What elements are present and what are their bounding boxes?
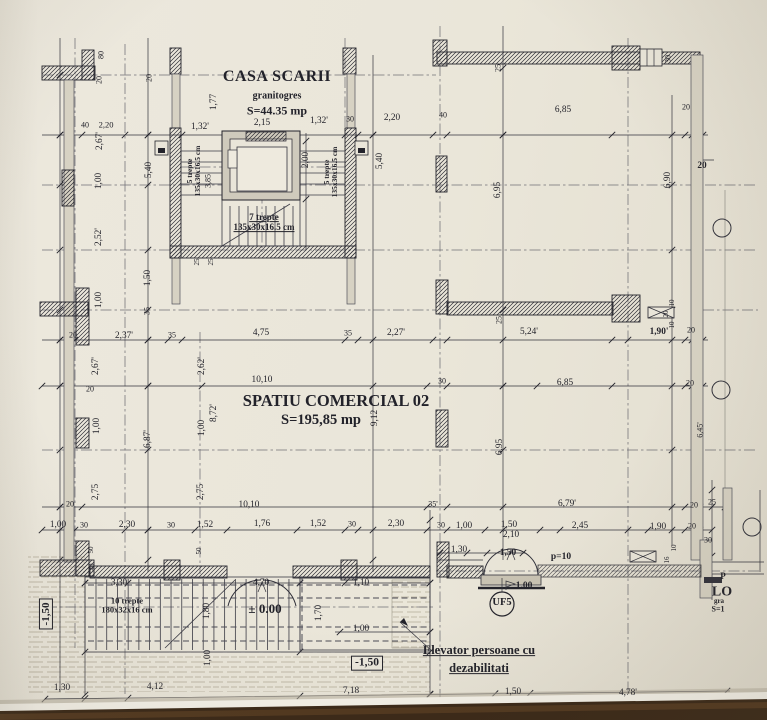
window-icon [630, 551, 656, 562]
electrical-box-icon [155, 141, 168, 155]
stairs-layer [85, 151, 430, 652]
stair-direction-line [222, 204, 290, 246]
electrical-box-icon [355, 141, 368, 155]
floor-plan-photo: CASA SCARII granitogres S=44.35 mp SPATI… [0, 0, 767, 720]
grid-bubble-icon [712, 219, 761, 536]
window-icon [648, 307, 674, 318]
entrance-door-swing-icon [228, 580, 296, 606]
plan-drawing [0, 0, 767, 720]
elevator-door [246, 132, 286, 141]
elevator-core [222, 131, 300, 200]
uf5-bubble [490, 592, 514, 616]
table-edge [0, 688, 767, 720]
